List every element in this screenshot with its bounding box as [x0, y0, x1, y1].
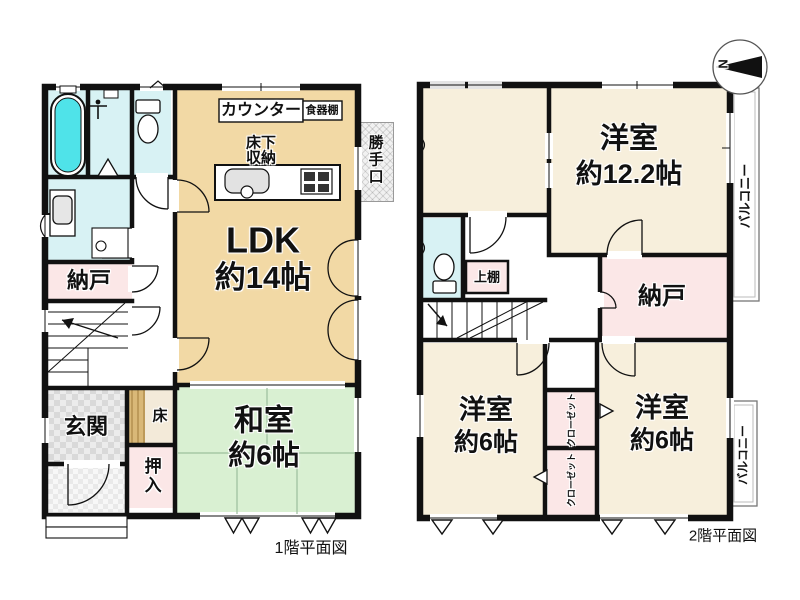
floor2-caption: 2階平面図: [689, 528, 757, 543]
room-large-size-label: 約12.2帖: [576, 161, 683, 189]
washbasin: [46, 190, 75, 236]
underfloor-storage-label: 床下収納: [244, 136, 278, 167]
ldk-name-label: LDK: [226, 223, 300, 260]
upper-shelf-label: 上棚: [474, 270, 500, 283]
compass-north-label: N: [716, 59, 729, 68]
balcony-top-label: バルコニー: [738, 164, 751, 229]
back-door-label: 勝手口: [367, 135, 382, 186]
washitsu-name-label: 和室: [234, 407, 294, 438]
room-right-size-label: 約6帖: [630, 428, 694, 454]
stairs-2f: [428, 300, 543, 340]
room-left-size-label: 約6帖: [454, 430, 518, 456]
stairs-1f: [48, 303, 128, 388]
shower-faucet: [90, 90, 118, 119]
room-right-name-label: 洋室: [635, 395, 689, 423]
cupboard-label: 食器棚: [306, 105, 339, 116]
balcony-bottom-label: バルコニー: [737, 425, 749, 485]
entrance-steps: [46, 516, 127, 538]
bathtub: [51, 86, 85, 176]
closet-bottom-label: クローゼット: [567, 453, 576, 507]
oshiire-label: 押入: [142, 457, 159, 495]
ldk-size-label: 約14帖: [215, 262, 311, 294]
counter-label: カウンター: [221, 103, 301, 119]
washitsu-size-label: 約6帖: [228, 442, 300, 471]
genkan-label: 玄関: [64, 416, 108, 438]
floor1-caption: 1階平面図: [275, 541, 348, 557]
toilet-2f-fixture: [433, 254, 456, 293]
room-left-name-label: 洋室: [459, 397, 513, 425]
floor1-walls: [45, 87, 358, 516]
toilet-1f-fixture: [136, 100, 160, 143]
window-chevrons: [225, 518, 675, 534]
nando-2f-label: 納戸: [638, 285, 686, 309]
toko-label: 床: [152, 408, 167, 423]
nando-1f-label: 納戸: [67, 270, 111, 292]
room-large-name-label: 洋室: [600, 125, 658, 155]
closet-top-label: クローゼット: [567, 393, 576, 447]
washing-machine: [92, 228, 128, 258]
floorplan-canvas: カウンター 食器棚 床下収納 勝手口 LDK 約14帖 納戸 玄関 床 押入 和…: [0, 0, 800, 600]
